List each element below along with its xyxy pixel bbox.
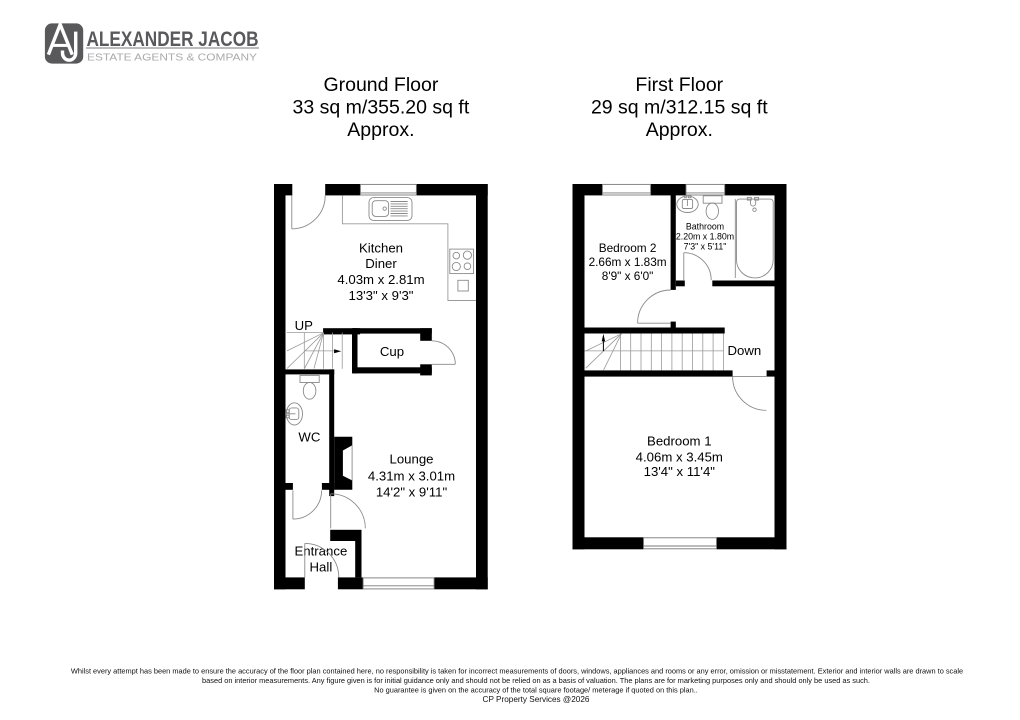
svg-text:2.20m x 1.80m: 2.20m x 1.80m [676, 232, 734, 242]
svg-text:8'9" x 6'0": 8'9" x 6'0" [602, 269, 654, 283]
svg-text:4.31m x 3.01m: 4.31m x 3.01m [368, 469, 455, 484]
svg-text:Lounge: Lounge [389, 452, 433, 467]
svg-text:Approx.: Approx. [347, 119, 414, 141]
svg-text:14'2" x 9'11": 14'2" x 9'11" [376, 485, 448, 500]
svg-text:Bedroom 1: Bedroom 1 [647, 434, 712, 449]
svg-text:Bathroom: Bathroom [686, 221, 724, 231]
svg-text:Entrance: Entrance [295, 543, 348, 558]
svg-text:Diner: Diner [365, 256, 397, 271]
svg-text:Ground Floor: Ground Floor [323, 74, 438, 96]
svg-text:ESTATE AGENTS & COMPANY: ESTATE AGENTS & COMPANY [87, 51, 257, 63]
svg-text:Whilst every attempt has been: Whilst every attempt has been made to en… [71, 667, 963, 676]
svg-text:Down: Down [728, 343, 762, 358]
svg-text:Approx.: Approx. [646, 119, 713, 141]
svg-text:No guarantee is given on the a: No guarantee is given on the accuracy of… [374, 685, 698, 694]
svg-text:First Floor: First Floor [635, 74, 723, 96]
svg-text:based on interior measurements: based on interior measurements. Any figu… [202, 676, 870, 685]
svg-text:UP: UP [295, 318, 314, 333]
svg-text:7'3" x 5'11": 7'3" x 5'11" [684, 242, 727, 252]
svg-text:Bedroom 2: Bedroom 2 [599, 241, 657, 255]
svg-text:4.06m x 3.45m: 4.06m x 3.45m [636, 449, 723, 464]
svg-text:13'4" x 11'4": 13'4" x 11'4" [644, 464, 716, 479]
svg-text:Hall: Hall [310, 560, 333, 575]
svg-text:Kitchen: Kitchen [359, 240, 403, 255]
svg-text:CP Property Services @2026: CP Property Services @2026 [483, 695, 590, 704]
svg-text:2.66m x 1.83m: 2.66m x 1.83m [589, 255, 667, 269]
svg-text:29 sq m/312.15 sq ft: 29 sq m/312.15 sq ft [591, 96, 768, 118]
svg-text:Cup: Cup [380, 344, 404, 359]
svg-text:WC: WC [298, 429, 320, 444]
svg-text:33 sq m/355.20 sq ft: 33 sq m/355.20 sq ft [293, 96, 470, 118]
svg-text:4.03m x 2.81m: 4.03m x 2.81m [337, 272, 424, 287]
svg-text:13'3" x 9'3": 13'3" x 9'3" [349, 288, 414, 303]
